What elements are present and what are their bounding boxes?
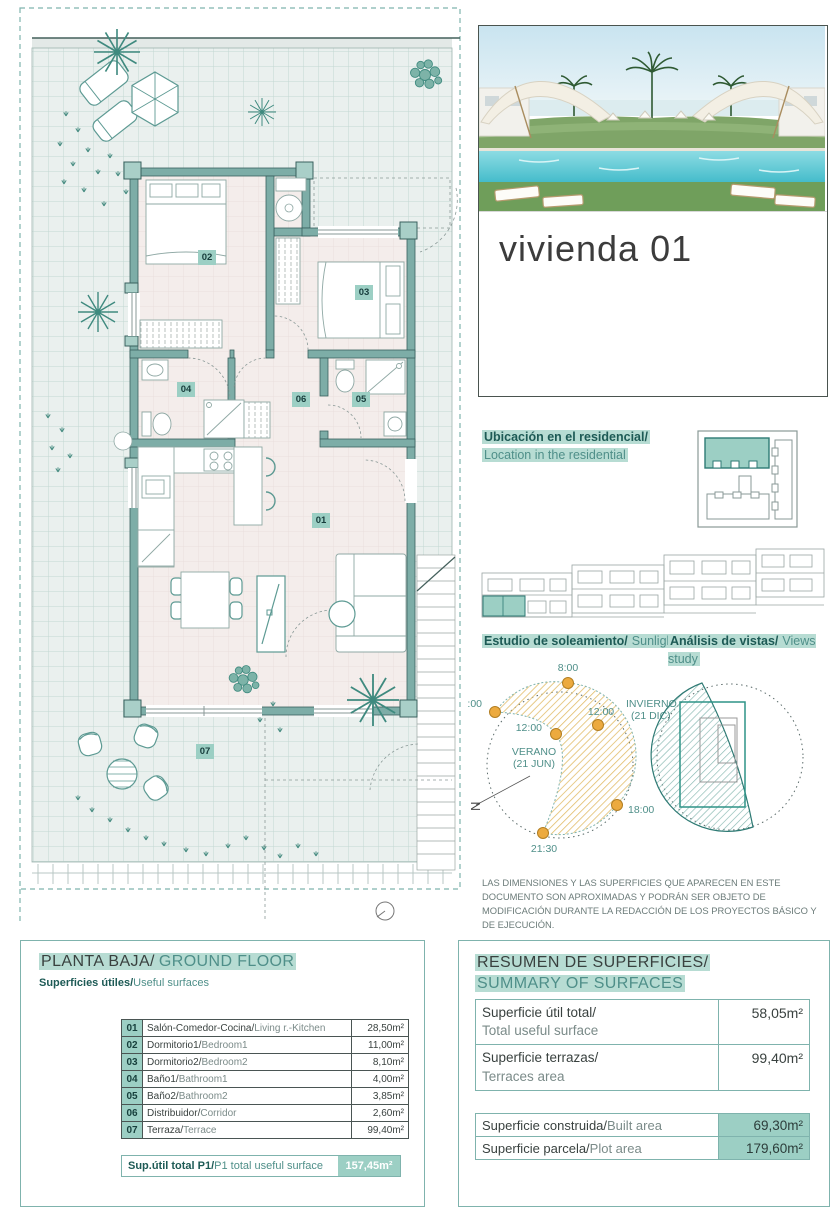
total-label-en: P1 total useful surface <box>214 1160 323 1172</box>
sunlight-label-es: Estudio de soleamiento/ <box>482 634 630 648</box>
table-row: 03 Dormitorio2/Bedroom2 8,10m² <box>122 1054 409 1071</box>
room-area: 3,85m² <box>352 1088 409 1105</box>
summary-area: 99,40m² <box>719 1045 810 1090</box>
room-name-es: Dormitorio2/ <box>147 1057 201 1068</box>
building-elevation <box>478 543 828 632</box>
table-row: 04 Baño1/Bathroom1 4,00m² <box>122 1071 409 1088</box>
room-name-en: Bedroom1 <box>201 1040 247 1051</box>
table-row: Superficie construida/Built area 69,30m² <box>476 1114 810 1137</box>
summary-area: 69,30m² <box>719 1114 810 1137</box>
room-name-es: Dormitorio1/ <box>147 1040 201 1051</box>
dwelling-title: vivienda 01 <box>499 228 827 270</box>
room-num: 03 <box>122 1054 143 1071</box>
room-area: 8,10m² <box>352 1054 409 1071</box>
room-name-en: Bathroom2 <box>179 1091 228 1102</box>
room-num: 07 <box>122 1122 143 1139</box>
summary-area: 179,60m² <box>719 1137 810 1160</box>
room-name-en: Bedroom2 <box>201 1057 247 1068</box>
summary-title: RESUMEN DE SUPERFICIES/ SUMMARY OF SURFA… <box>475 953 710 995</box>
gf-title-es: PLANTA BAJA/ <box>39 953 157 970</box>
north-indicator: N <box>468 802 483 811</box>
room-label-07: 07 <box>196 744 214 759</box>
room-num: 02 <box>122 1037 143 1054</box>
room-name-en: Bathroom1 <box>179 1074 228 1085</box>
summary-card: RESUMEN DE SUPERFICIES/ SUMMARY OF SURFA… <box>458 940 830 1207</box>
summary-area: 58,05m² <box>719 1000 810 1045</box>
summary-title-en: SUMMARY OF SURFACES <box>475 975 685 992</box>
room-num: 06 <box>122 1105 143 1122</box>
room-label-02: 02 <box>198 250 216 265</box>
views-diagram <box>650 655 820 878</box>
summary-label-es: Superficie construida/ <box>482 1118 607 1133</box>
summary-title-es: RESUMEN DE SUPERFICIES/ <box>475 954 710 971</box>
total-area: 157,45m² <box>338 1156 400 1176</box>
room-area: 11,00m² <box>352 1037 409 1054</box>
room-name-es: Salón-Comedor-Cocina/ <box>147 1023 254 1034</box>
dwelling-card: vivienda 01 <box>478 25 828 397</box>
ground-floor-subtitle: Superficies útiles/Useful surfaces <box>39 977 209 989</box>
sun-time-12-summer: 12:00 <box>516 722 542 734</box>
summary-label-es: Superficie útil total/ <box>482 1005 596 1020</box>
room-label-06: 06 <box>292 392 310 407</box>
table-row: 02 Dormitorio1/Bedroom1 11,00m² <box>122 1037 409 1054</box>
summary-label-en: Terraces area <box>482 1069 565 1084</box>
gf-title-en: GROUND FLOOR <box>157 953 296 970</box>
summary-label-en: Built area <box>607 1118 662 1133</box>
room-num: 04 <box>122 1071 143 1088</box>
room-label-03: 03 <box>355 285 373 300</box>
room-area: 4,00m² <box>352 1071 409 1088</box>
gf-subtitle-es: Superficies útiles/ <box>39 977 133 989</box>
side-table <box>329 601 355 627</box>
floor-plan-drawing <box>18 6 464 932</box>
table-row: Superficie terrazas/Terraces area 99,40m… <box>476 1045 810 1090</box>
room-area: 28,50m² <box>352 1020 409 1037</box>
wardrobe-2 <box>276 238 300 304</box>
drain-symbol <box>376 902 394 920</box>
floor-plan: 01 02 03 04 05 06 07 <box>18 6 464 932</box>
table-row: 01 Salón-Comedor-Cocina/Living r.-Kitche… <box>122 1020 409 1037</box>
room-num: 01 <box>122 1020 143 1037</box>
room-name-es: Distribuidor/ <box>147 1108 200 1119</box>
sun-time-12-winter: 12:00 <box>588 706 614 718</box>
summary-label-en: Total useful surface <box>482 1023 598 1038</box>
summary-table-bottom: Superficie construida/Built area 69,30m²… <box>475 1113 810 1160</box>
ground-floor-title: PLANTA BAJA/GROUND FLOOR <box>39 953 296 971</box>
table-row: 07 Terraza/Terrace 99,40m² <box>122 1122 409 1139</box>
location-label-en: Location in the residential <box>482 448 628 462</box>
location-label: Ubicación en el residencial/ Location in… <box>482 428 692 464</box>
stairs <box>417 555 455 870</box>
brochure-page: 01 02 03 04 05 06 07 <box>0 0 840 1222</box>
gf-subtitle-en: Useful surfaces <box>133 977 209 989</box>
total-row: Sup.útil total P1/P1 total useful surfac… <box>121 1155 401 1177</box>
disclaimer-text: LAS DIMENSIONES Y LAS SUPERFICIES QUE AP… <box>482 876 830 932</box>
highlighted-unit <box>483 596 525 616</box>
room-label-01: 01 <box>312 513 330 528</box>
residence-photo <box>479 26 827 212</box>
tv-unit <box>257 576 285 652</box>
total-label-es: Sup.útil total P1/ <box>128 1160 214 1172</box>
room-name-es: Baño1/ <box>147 1074 179 1085</box>
summer-label: VERANO <box>512 746 556 758</box>
surfaces-table: 01 Salón-Comedor-Cocina/Living r.-Kitche… <box>121 1019 409 1139</box>
room-label-05: 05 <box>352 392 370 407</box>
views-label-es: Análisis de vistas/ <box>668 634 780 648</box>
summary-label-es: Superficie parcela/ <box>482 1141 590 1156</box>
table-row: 06 Distribuidor/Corridor 2,60m² <box>122 1105 409 1122</box>
room-label-04: 04 <box>177 382 195 397</box>
wardrobe-1 <box>140 320 222 348</box>
location-label-es: Ubicación en el residencial/ <box>482 430 650 444</box>
ground-floor-card: PLANTA BAJA/GROUND FLOOR Superficies úti… <box>20 940 425 1207</box>
summer-date: (21 JUN) <box>513 758 555 770</box>
table-row: Superficie parcela/Plot area 179,60m² <box>476 1137 810 1160</box>
room-name-en: Corridor <box>200 1108 236 1119</box>
summary-label-en: Plot area <box>590 1141 642 1156</box>
bed-2 <box>318 262 404 338</box>
table-row: 05 Baño2/Bathroom2 3,85m² <box>122 1088 409 1105</box>
summary-label-es: Superficie terrazas/ <box>482 1050 598 1065</box>
table-row: Superficie útil total/Total useful surfa… <box>476 1000 810 1045</box>
room-name-es: Terraza/ <box>147 1125 183 1136</box>
room-name-es: Baño2/ <box>147 1091 179 1102</box>
sun-time-8: 8:00 <box>558 662 579 674</box>
room-area: 99,40m² <box>352 1122 409 1139</box>
corridor-cupboard <box>244 402 270 438</box>
room-area: 2,60m² <box>352 1105 409 1122</box>
room-name-en: Living r.-Kitchen <box>254 1023 325 1034</box>
site-plan-map <box>697 430 799 534</box>
room-num: 05 <box>122 1088 143 1105</box>
room-name-en: Terrace <box>183 1125 216 1136</box>
summary-table-top: Superficie útil total/Total useful surfa… <box>475 999 810 1091</box>
sun-time-7: 7:00 <box>468 698 482 710</box>
sun-time-2130: 21:30 <box>531 843 557 855</box>
